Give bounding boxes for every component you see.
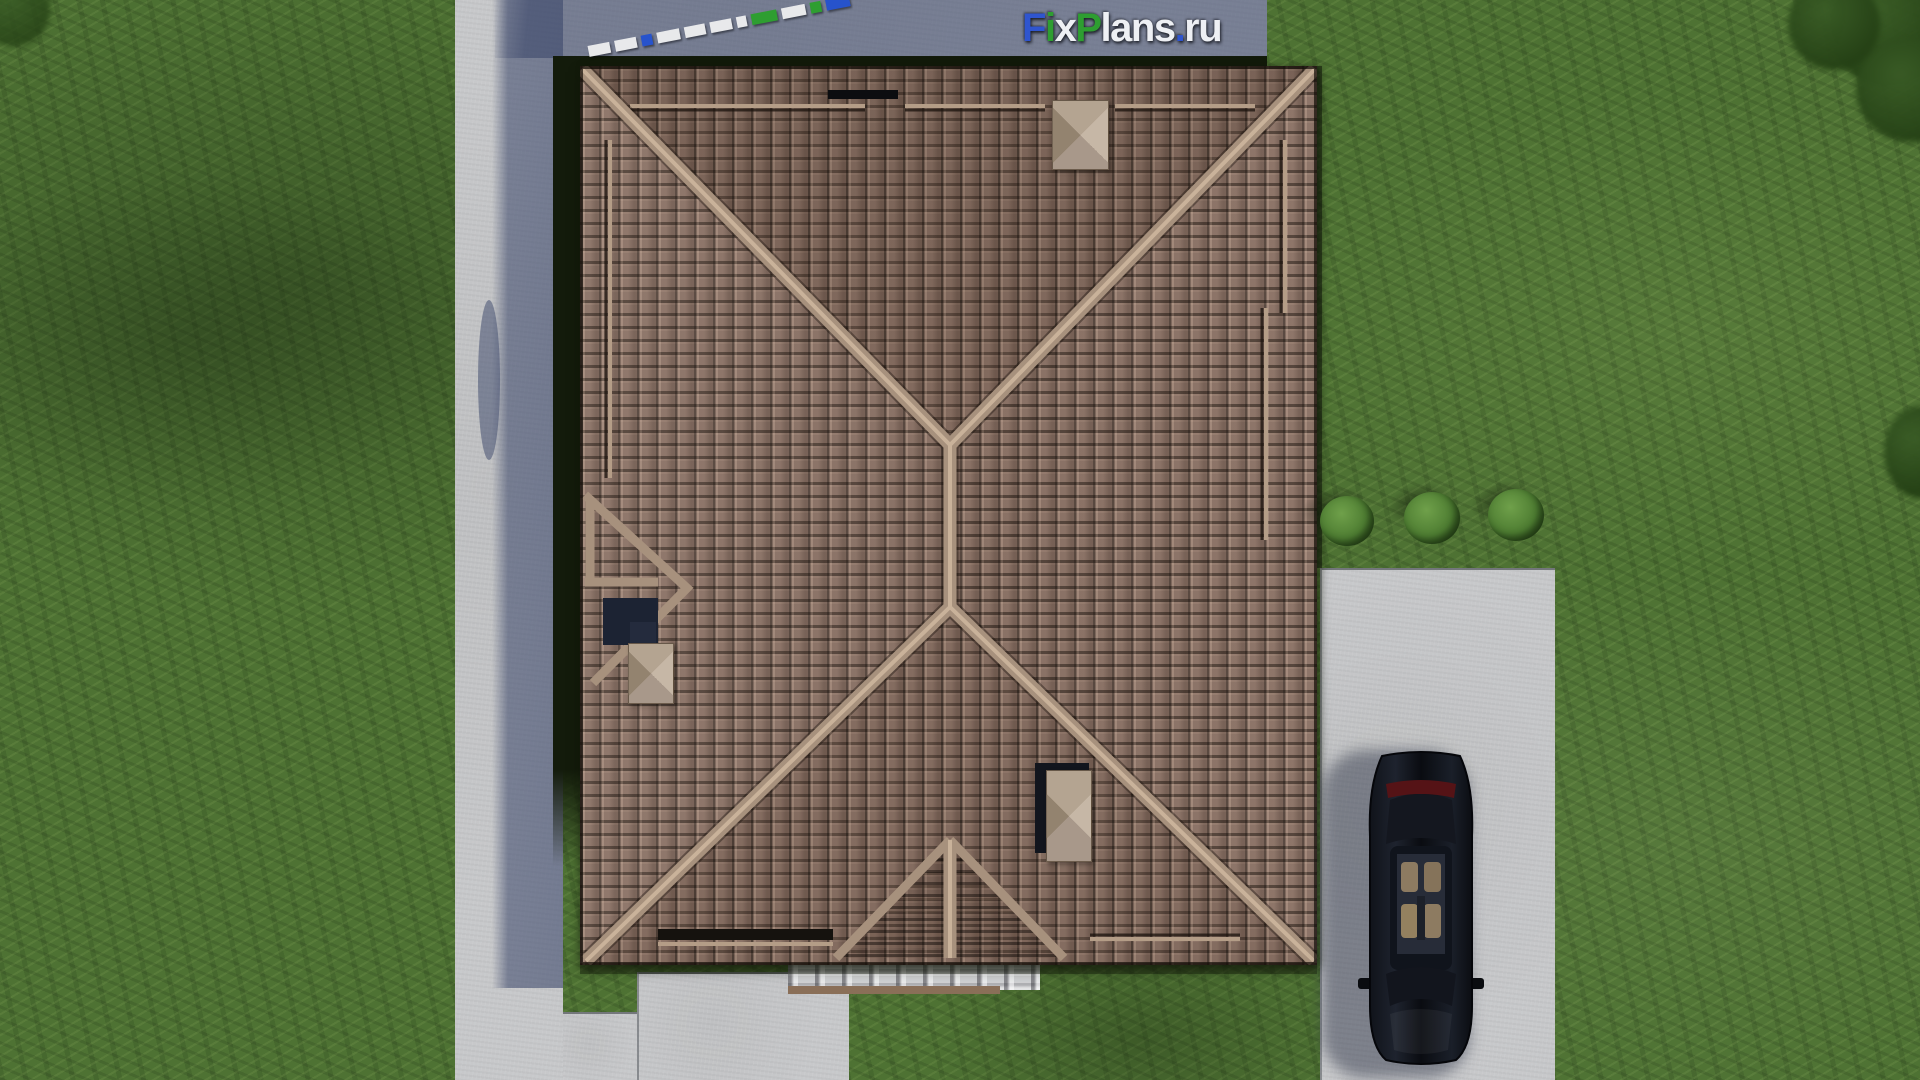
roof-ridges [580, 66, 1317, 965]
path-extension [563, 1012, 637, 1080]
car-seat [1424, 862, 1441, 892]
bush [1488, 489, 1544, 541]
car [1356, 746, 1486, 1070]
chimney-cap-bottom [1046, 770, 1092, 862]
roof-vent [828, 90, 898, 99]
logo-letter: i [1045, 6, 1055, 50]
bush [1404, 492, 1460, 544]
logo-letter: F [1022, 6, 1045, 50]
eave-fascia [788, 986, 1000, 994]
snow-guard-bottom-left [658, 929, 833, 940]
rear-window [1386, 794, 1456, 844]
roof-edge-shade [580, 965, 1317, 974]
scale-bar-segment [641, 34, 654, 47]
site-plan-render: FixPlans.ru [0, 0, 1920, 1080]
logo-letter: l [1101, 6, 1111, 50]
logo-letter: u [1198, 6, 1221, 50]
ridge-highlight [582, 69, 1315, 961]
fixplans-watermark: FixPlans.ru [1022, 8, 1221, 48]
wall-shadow-strip-left [553, 60, 582, 866]
logo-letter: . [1175, 6, 1185, 50]
scale-bar-segment [736, 15, 748, 28]
bush [1320, 496, 1374, 546]
chimney-cap-top [1052, 100, 1109, 170]
car-seat [1401, 862, 1418, 892]
scale-bar-segment [809, 1, 822, 14]
logo-letter: a [1110, 6, 1131, 50]
logo-letter: P [1075, 6, 1100, 50]
center-console [1417, 896, 1425, 940]
logo-letter: n [1131, 6, 1154, 50]
logo-letter: s [1154, 6, 1175, 50]
hood-highlight [1390, 1009, 1452, 1054]
hip-roof [580, 66, 1317, 965]
car-seat [1401, 904, 1418, 938]
house-shadow-path [478, 300, 500, 460]
chimney-cap-dormer [628, 643, 674, 704]
car-seat [1424, 904, 1441, 938]
logo-letter: x [1055, 6, 1076, 50]
logo-letter: r [1184, 6, 1198, 50]
